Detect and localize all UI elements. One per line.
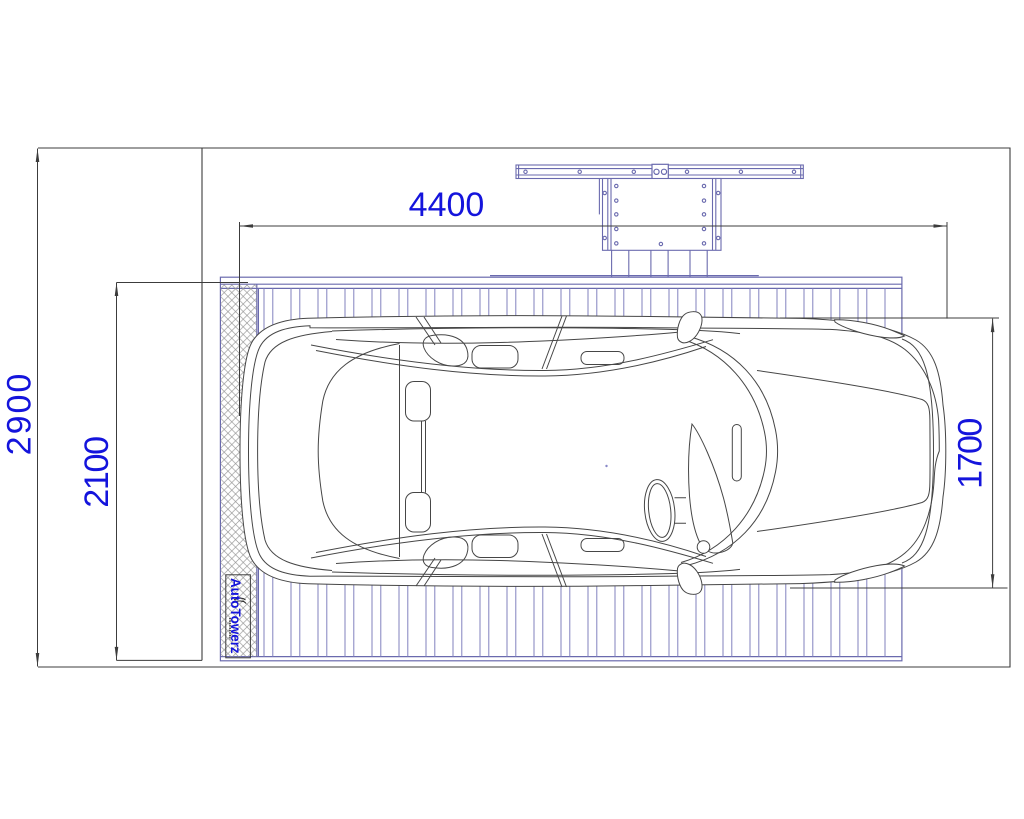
svg-text:1700: 1700 <box>952 419 990 489</box>
svg-text:2900: 2900 <box>1 372 39 456</box>
svg-text:4400: 4400 <box>409 186 485 224</box>
svg-text:2100: 2100 <box>78 437 116 508</box>
svg-text:AutoTowerz: AutoTowerz <box>228 578 243 654</box>
